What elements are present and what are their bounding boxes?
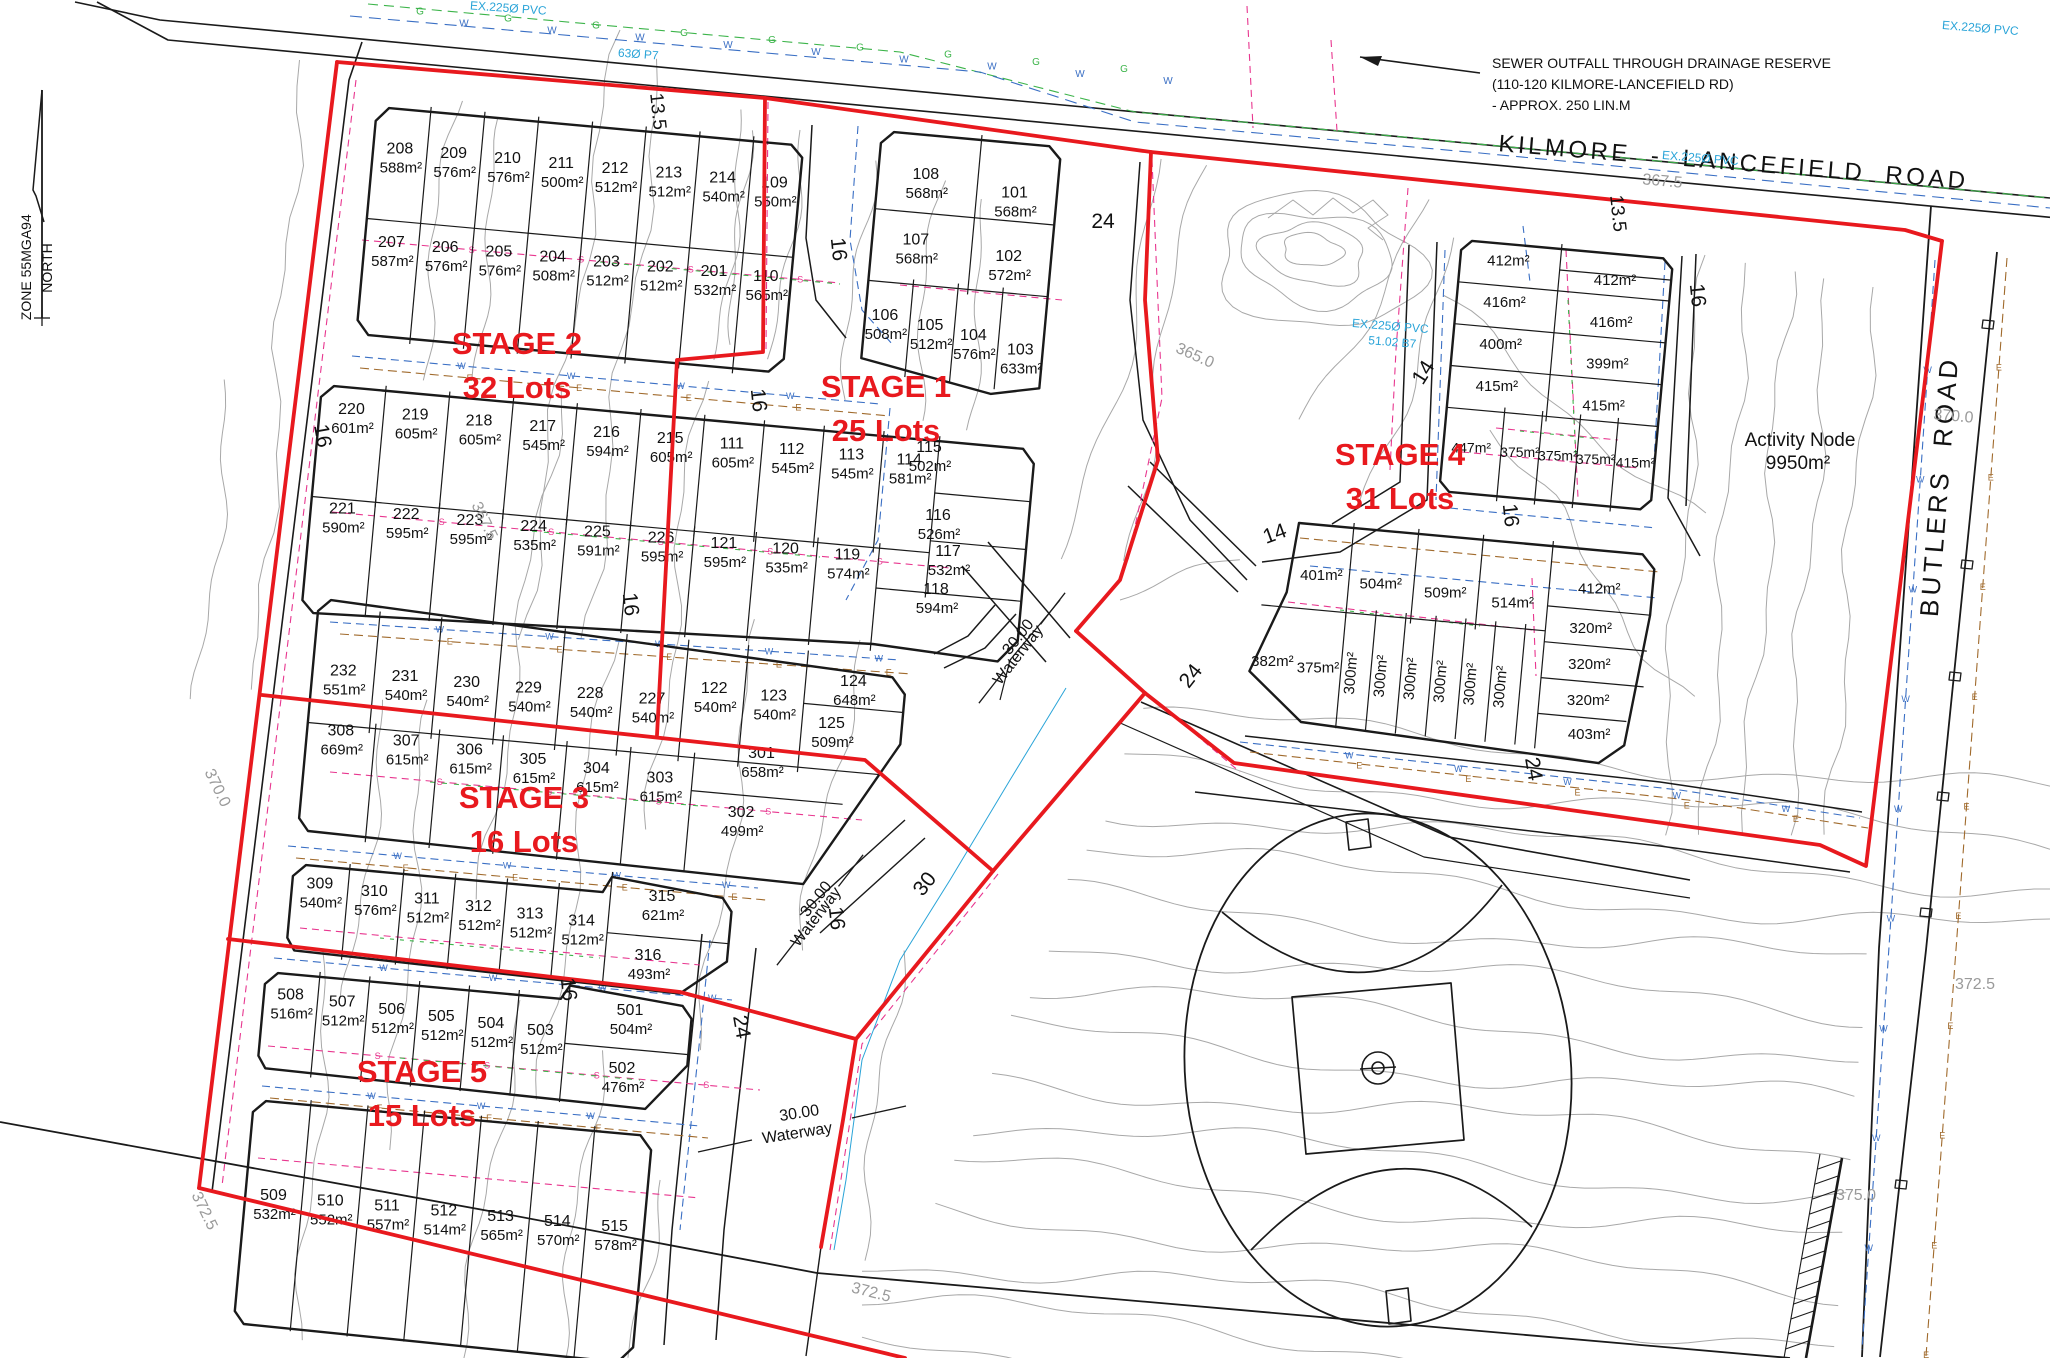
svg-text:W: W [722,880,731,890]
svg-text:576m²: 576m² [953,346,996,363]
svg-text:STAGE 5: STAGE 5 [357,1054,487,1089]
svg-text:E: E [795,403,801,413]
svg-text:E: E [1684,801,1690,811]
svg-text:16 Lots: 16 Lots [470,824,579,859]
svg-text:595m²: 595m² [641,548,684,565]
svg-text:W: W [811,47,821,58]
svg-text:63Ø P7: 63Ø P7 [617,46,659,63]
svg-text:532m²: 532m² [694,282,737,299]
svg-text:540m²: 540m² [632,710,675,727]
svg-text:107: 107 [902,232,929,249]
svg-text:415m²: 415m² [1616,455,1656,471]
svg-text:508m²: 508m² [532,268,575,285]
svg-text:105: 105 [917,317,944,334]
svg-text:24: 24 [728,1013,755,1040]
svg-text:W: W [723,40,733,51]
svg-text:S: S [439,517,445,527]
svg-text:E: E [1972,692,1978,702]
svg-text:565m²: 565m² [480,1227,523,1244]
svg-text:108: 108 [912,166,939,183]
svg-text:G: G [768,35,776,46]
svg-text:509m²: 509m² [1424,585,1467,602]
svg-text:540m²: 540m² [300,894,343,911]
svg-text:217: 217 [529,418,556,435]
svg-text:578m²: 578m² [594,1237,637,1254]
svg-text:509: 509 [260,1187,287,1204]
svg-text:515: 515 [601,1218,628,1235]
svg-text:568m²: 568m² [896,251,939,268]
svg-text:101: 101 [1001,184,1028,201]
svg-text:401m²: 401m² [1300,567,1343,584]
svg-text:512m²: 512m² [421,1027,464,1044]
svg-text:508: 508 [277,986,304,1003]
svg-text:307: 307 [393,732,420,749]
svg-text:W: W [1563,777,1572,787]
svg-text:E: E [447,637,453,647]
svg-text:506: 506 [378,1001,405,1018]
svg-text:13.5: 13.5 [1605,194,1630,233]
svg-text:W: W [503,861,512,871]
svg-text:658m²: 658m² [741,764,784,781]
svg-text:32 Lots: 32 Lots [463,370,572,405]
svg-text:590m²: 590m² [322,519,365,536]
svg-text:540m²: 540m² [508,698,551,715]
svg-text:375.0: 375.0 [1836,1187,1876,1204]
svg-text:119: 119 [835,546,861,563]
svg-text:- APPROX. 250 LIN.M: - APPROX. 250 LIN.M [1492,97,1631,113]
svg-text:E: E [512,873,518,883]
svg-text:W: W [547,26,557,37]
svg-text:416m²: 416m² [1590,314,1633,331]
svg-text:S: S [437,777,443,787]
svg-text:G: G [856,42,864,53]
svg-text:545m²: 545m² [771,460,814,477]
svg-text:367.5: 367.5 [1642,171,1683,191]
svg-text:512m²: 512m² [471,1034,514,1051]
svg-text:E: E [1923,1350,1929,1358]
svg-text:305: 305 [520,751,547,768]
svg-text:16: 16 [746,388,771,414]
svg-text:16: 16 [1498,503,1523,529]
svg-text:206: 206 [432,239,459,256]
svg-text:511: 511 [374,1198,400,1215]
svg-text:111: 111 [720,435,744,452]
svg-text:228: 228 [577,685,604,702]
svg-text:375m²: 375m² [1500,444,1540,460]
svg-text:W: W [1782,804,1791,814]
svg-text:E: E [1980,582,1986,592]
svg-text:15 Lots: 15 Lots [368,1098,477,1133]
svg-text:540m²: 540m² [753,707,796,724]
svg-text:226: 226 [648,529,675,546]
svg-text:S: S [688,265,694,275]
svg-text:W: W [1894,804,1903,814]
svg-text:W: W [545,632,554,642]
svg-text:615m²: 615m² [386,751,429,768]
svg-text:E: E [622,882,628,892]
svg-text:208: 208 [387,140,414,157]
svg-text:E: E [1793,814,1799,824]
svg-text:512m²: 512m² [407,910,450,927]
svg-text:16: 16 [824,906,849,932]
svg-text:512m²: 512m² [520,1041,563,1058]
svg-text:121: 121 [711,535,738,552]
svg-text:W: W [1672,791,1681,801]
svg-text:320m²: 320m² [1568,656,1611,673]
svg-text:403m²: 403m² [1568,726,1611,743]
svg-text:219: 219 [402,407,429,424]
svg-text:221: 221 [329,500,356,517]
svg-text:227: 227 [639,691,666,708]
svg-text:230: 230 [453,674,480,691]
svg-text:570m²: 570m² [537,1232,580,1249]
svg-text:103: 103 [1007,342,1034,359]
svg-text:117: 117 [935,543,961,560]
svg-text:499m²: 499m² [721,823,764,840]
svg-text:212: 212 [602,160,629,177]
svg-text:203: 203 [593,254,620,271]
svg-text:512m²: 512m² [595,179,638,196]
svg-text:E: E [731,892,737,902]
svg-text:504m²: 504m² [610,1021,653,1038]
svg-text:207: 207 [378,234,405,251]
svg-text:W: W [1163,76,1173,87]
svg-text:S: S [594,1070,600,1080]
svg-text:516m²: 516m² [270,1005,313,1022]
svg-text:576m²: 576m² [433,164,476,181]
svg-text:122: 122 [701,680,728,697]
svg-text:502: 502 [609,1060,636,1077]
svg-text:E: E [1947,1021,1953,1031]
svg-text:545m²: 545m² [522,437,565,454]
svg-text:Activity Node: Activity Node [1745,430,1856,451]
svg-text:615m²: 615m² [640,789,683,806]
svg-text:512m²: 512m² [649,184,692,201]
svg-text:507: 507 [329,994,356,1011]
svg-text:W: W [875,654,884,664]
svg-text:16: 16 [1685,283,1710,309]
svg-text:412m²: 412m² [1578,581,1621,598]
svg-text:370.0: 370.0 [1933,406,1974,426]
svg-text:W: W [379,963,388,973]
svg-text:S: S [548,527,554,537]
svg-text:512m²: 512m² [910,336,953,353]
svg-text:118: 118 [923,581,949,598]
svg-text:G: G [680,28,688,39]
svg-text:232: 232 [330,663,357,680]
svg-text:E: E [1996,363,2002,373]
svg-text:540m²: 540m² [702,189,745,206]
svg-text:320m²: 320m² [1567,692,1610,709]
svg-text:E: E [576,383,582,393]
svg-text:209: 209 [440,145,467,162]
svg-text:416m²: 416m² [1483,294,1526,311]
svg-text:E: E [1963,802,1969,812]
svg-text:124: 124 [840,673,867,690]
svg-text:110: 110 [753,268,779,285]
svg-text:231: 231 [392,668,419,685]
svg-text:W: W [459,18,469,29]
svg-text:512m²: 512m² [586,273,629,290]
svg-text:16: 16 [618,592,643,618]
svg-text:535m²: 535m² [513,537,556,554]
svg-text:STAGE 3: STAGE 3 [459,780,589,815]
svg-text:512m²: 512m² [510,924,553,941]
svg-text:204: 204 [539,249,566,266]
svg-text:W: W [393,851,402,861]
svg-text:306: 306 [456,742,483,759]
svg-text:595m²: 595m² [704,554,747,571]
svg-text:16: 16 [309,422,336,449]
svg-text:125: 125 [818,715,845,732]
svg-text:218: 218 [466,412,493,429]
svg-text:669m²: 669m² [321,742,364,759]
svg-text:415m²: 415m² [1476,378,1519,395]
svg-text:STAGE 2: STAGE 2 [452,326,582,361]
svg-text:476m²: 476m² [602,1079,645,1096]
svg-text:312: 312 [465,898,492,915]
svg-text:E: E [666,652,672,662]
svg-text:W: W [1345,750,1354,760]
svg-text:302: 302 [728,804,755,821]
svg-text:594m²: 594m² [586,443,629,460]
svg-text:G: G [416,6,424,17]
svg-text:ZONE 55: ZONE 55 [18,262,34,321]
svg-text:W: W [477,1101,486,1111]
svg-text:501: 501 [617,1002,644,1019]
svg-text:SEWER OUTFALL THROUGH DRAINAGE: SEWER OUTFALL THROUGH DRAINAGE RESERVE [1492,55,1831,71]
svg-text:512: 512 [430,1203,457,1220]
svg-text:31 Lots: 31 Lots [1346,481,1455,516]
svg-text:E: E [1356,760,1362,770]
svg-text:311: 311 [414,891,440,908]
svg-text:500m²: 500m² [541,174,584,191]
svg-text:574m²: 574m² [827,565,870,582]
svg-text:220: 220 [338,401,365,418]
svg-text:540m²: 540m² [570,704,613,721]
svg-text:510: 510 [317,1192,344,1209]
svg-text:112: 112 [779,441,805,458]
svg-text:615m²: 615m² [449,761,492,778]
svg-text:594m²: 594m² [916,600,959,617]
svg-text:605m²: 605m² [712,454,755,471]
svg-text:224: 224 [520,518,547,535]
svg-text:576m²: 576m² [354,902,397,919]
svg-text:412m²: 412m² [1594,272,1637,289]
svg-text:G: G [592,21,600,32]
svg-text:513: 513 [487,1208,514,1225]
svg-text:540m²: 540m² [446,693,489,710]
svg-text:225: 225 [584,524,611,541]
svg-text:24: 24 [1091,210,1115,233]
svg-text:415m²: 415m² [1582,398,1625,415]
svg-text:303: 303 [647,770,674,787]
svg-text:375m²: 375m² [1297,659,1340,676]
svg-text:104: 104 [960,327,987,344]
svg-text:S: S [765,807,771,817]
svg-text:STAGE 1: STAGE 1 [821,369,951,404]
svg-text:229: 229 [515,679,542,696]
svg-text:123: 123 [760,688,787,705]
svg-text:512m²: 512m² [561,932,604,949]
svg-text:211: 211 [548,155,574,172]
svg-text:512m²: 512m² [458,917,501,934]
svg-text:588m²: 588m² [380,159,423,176]
svg-text:503: 503 [527,1022,554,1039]
svg-text:W: W [765,646,774,656]
svg-text:210: 210 [494,150,521,167]
svg-text:E: E [1955,911,1961,921]
svg-text:502m²: 502m² [909,458,952,475]
svg-text:316: 316 [635,947,662,964]
svg-text:W: W [786,391,795,401]
svg-text:568m²: 568m² [906,185,949,202]
svg-text:16: 16 [556,977,581,1003]
svg-text:E: E [1931,1240,1937,1250]
svg-text:621m²: 621m² [642,907,685,924]
svg-text:605m²: 605m² [459,431,502,448]
svg-text:120: 120 [772,541,799,558]
svg-text:W: W [635,33,645,44]
svg-text:514m²: 514m² [424,1222,467,1239]
svg-text:W: W [1879,1023,1888,1033]
svg-text:S: S [578,255,584,265]
svg-text:601m²: 601m² [331,420,374,437]
svg-text:648m²: 648m² [833,692,876,709]
svg-text:375m²: 375m² [1538,448,1578,464]
svg-text:375m²: 375m² [1576,451,1616,467]
svg-text:W: W [1454,764,1463,774]
svg-text:102: 102 [995,248,1022,265]
svg-text:372.5: 372.5 [1955,976,1995,993]
svg-text:205: 205 [486,244,513,261]
svg-text:W: W [586,1111,595,1121]
svg-text:412m²: 412m² [1487,252,1530,269]
svg-text:214: 214 [709,170,736,187]
svg-text:382m²: 382m² [1251,653,1294,670]
svg-text:116: 116 [925,507,951,524]
svg-text:W: W [1865,1243,1874,1253]
svg-text:E: E [1465,774,1471,784]
svg-text:215: 215 [657,430,684,447]
svg-text:595m²: 595m² [386,525,429,542]
svg-text:514m²: 514m² [1491,595,1534,612]
svg-text:308: 308 [327,723,354,740]
svg-text:213: 213 [655,165,682,182]
svg-text:508m²: 508m² [865,326,908,343]
svg-text:540m²: 540m² [385,687,428,704]
svg-text:565m²: 565m² [746,287,789,304]
svg-text:309: 309 [307,875,334,892]
svg-text:STAGE 4: STAGE 4 [1335,437,1466,472]
svg-text:504: 504 [478,1015,505,1032]
svg-text:493m²: 493m² [628,966,671,983]
svg-text:9950m²: 9950m² [1766,453,1830,474]
svg-text:MGA94: MGA94 [18,214,34,262]
svg-text:E: E [556,644,562,654]
svg-text:S: S [797,274,803,284]
svg-text:NORTH: NORTH [39,243,55,293]
svg-text:E: E [1574,787,1580,797]
svg-text:320m²: 320m² [1569,620,1612,637]
svg-text:605m²: 605m² [395,426,438,443]
svg-text:113: 113 [839,446,865,463]
svg-text:550m²: 550m² [754,193,797,210]
svg-text:512m²: 512m² [322,1013,365,1030]
svg-text:532m²: 532m² [928,562,971,579]
svg-text:E: E [686,393,692,403]
svg-text:E: E [1939,1131,1945,1141]
svg-text:545m²: 545m² [831,465,874,482]
svg-text:G: G [1032,57,1040,68]
svg-text:201: 201 [701,263,728,280]
svg-text:535m²: 535m² [765,560,808,577]
svg-text:W: W [1872,1133,1881,1143]
svg-text:504m²: 504m² [1360,576,1403,593]
svg-text:505: 505 [428,1008,455,1025]
svg-text:315: 315 [649,888,676,905]
svg-text:G: G [1120,64,1128,75]
svg-text:576m²: 576m² [479,263,522,280]
svg-text:G: G [944,50,952,61]
svg-text:25 Lots: 25 Lots [832,413,941,448]
svg-text:509m²: 509m² [811,734,854,751]
svg-text:216: 216 [593,424,620,441]
svg-text:568m²: 568m² [994,203,1037,220]
svg-text:314: 314 [568,913,595,930]
svg-text:526m²: 526m² [918,526,961,543]
svg-text:576m²: 576m² [425,258,468,275]
svg-text:24: 24 [1520,755,1547,782]
svg-text:W: W [899,54,909,65]
svg-text:572m²: 572m² [988,267,1031,284]
svg-text:512m²: 512m² [371,1020,414,1037]
svg-text:(110-120 KILMORE-LANCEFIELD RD: (110-120 KILMORE-LANCEFIELD RD) [1492,76,1734,92]
svg-text:106: 106 [872,307,899,324]
svg-text:400m²: 400m² [1479,336,1522,353]
svg-text:633m²: 633m² [1000,361,1043,378]
svg-text:591m²: 591m² [577,543,620,560]
svg-text:310: 310 [361,883,388,900]
svg-text:13.5: 13.5 [645,92,670,131]
svg-text:W: W [987,62,997,73]
svg-text:W: W [1901,694,1910,704]
svg-text:E: E [1988,472,1994,482]
svg-text:W: W [489,973,498,983]
svg-text:222: 222 [393,506,420,523]
svg-text:313: 313 [517,905,544,922]
svg-text:514: 514 [544,1213,571,1230]
svg-text:576m²: 576m² [487,169,530,186]
svg-text:202: 202 [647,258,674,275]
svg-text:16: 16 [826,237,851,263]
svg-text:304: 304 [583,760,610,777]
svg-text:W: W [1075,69,1085,80]
svg-text:399m²: 399m² [1586,356,1629,373]
svg-text:W: W [1887,914,1896,924]
svg-text:551m²: 551m² [323,682,366,699]
svg-text:587m²: 587m² [371,253,414,270]
svg-text:540m²: 540m² [694,699,737,716]
svg-text:S: S [703,1080,709,1090]
svg-text:512m²: 512m² [640,277,683,294]
